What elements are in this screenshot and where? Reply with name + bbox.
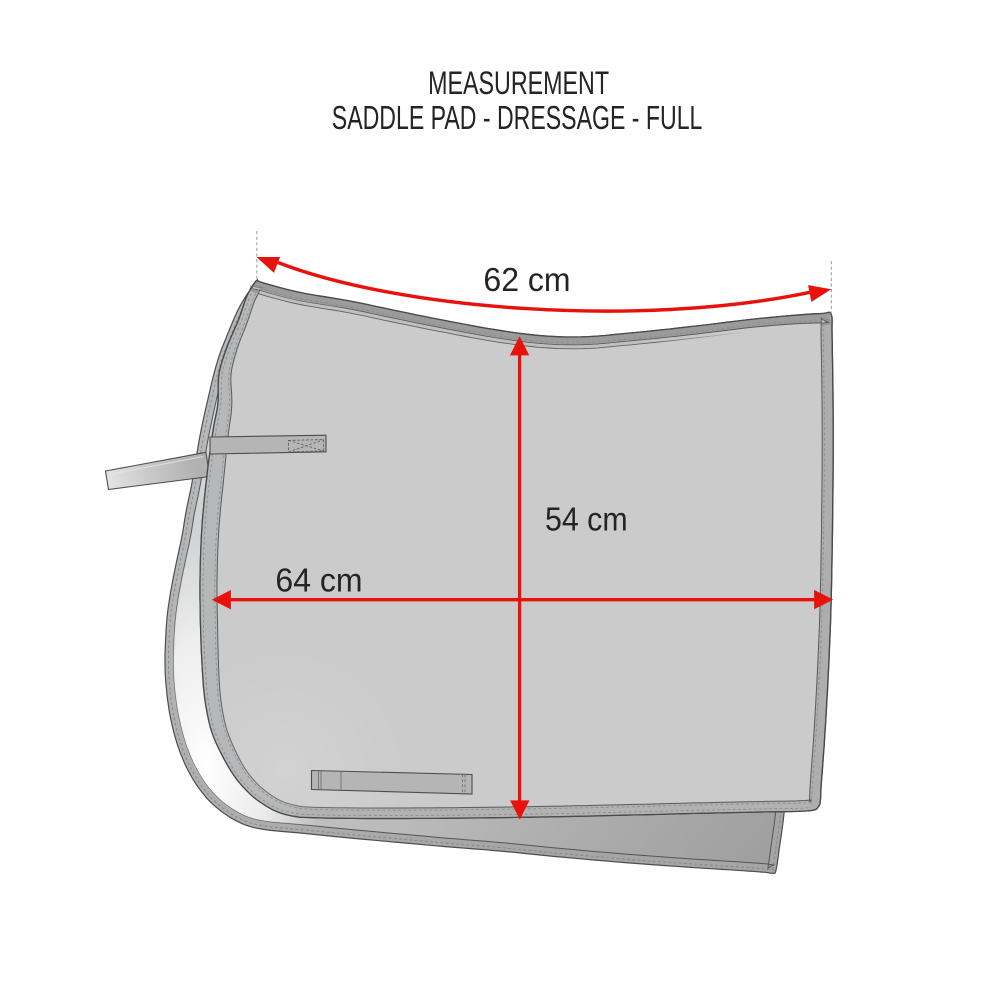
svg-text:64 cm: 64 cm — [275, 562, 362, 599]
svg-text:SADDLE PAD - DRESSAGE - FULL: SADDLE PAD - DRESSAGE - FULL — [332, 100, 703, 137]
svg-text:54 cm: 54 cm — [545, 500, 628, 537]
svg-text:MEASUREMENT: MEASUREMENT — [428, 64, 609, 101]
svg-text:62 cm: 62 cm — [483, 261, 570, 298]
